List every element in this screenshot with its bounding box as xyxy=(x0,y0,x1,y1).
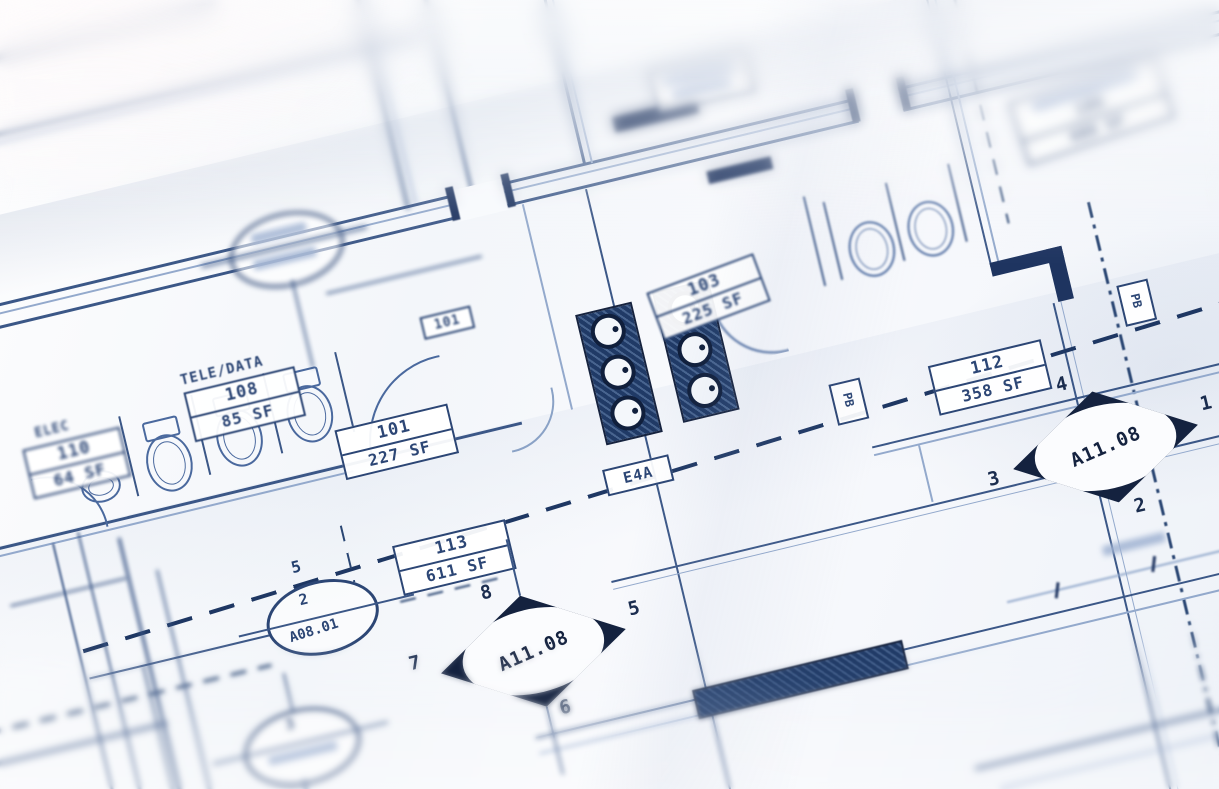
toilet-fixture xyxy=(843,216,901,281)
toilet-bowl xyxy=(851,225,892,273)
wall-poche xyxy=(706,156,773,184)
blueprint-photo: TELE/DATA 108 85 SF ELEC 110 64 SF 101 2… xyxy=(0,0,1219,789)
diamond-corner-number: 8 xyxy=(478,581,494,605)
diamond-corner-number: 7 xyxy=(407,651,423,675)
keynote-label: PB xyxy=(1126,285,1146,315)
diamond-sheet-number: A11.08 xyxy=(495,626,572,676)
wall-poche-hatched xyxy=(692,640,909,720)
wall-line xyxy=(522,204,573,410)
keynote-label: PB xyxy=(838,384,858,414)
door-number: 101 xyxy=(422,308,473,338)
leader-line xyxy=(291,280,314,368)
door-tag-101: 101 xyxy=(419,305,475,340)
room-tag-106-blurred: 106 608 SF xyxy=(1008,54,1175,165)
dimension-tick xyxy=(1151,556,1155,572)
diamond-callout-face: A11.08 xyxy=(453,593,613,709)
stall-partition xyxy=(823,202,844,280)
wall-line xyxy=(1000,697,1219,789)
room-name-label: ELEC xyxy=(33,418,71,441)
stall-partition xyxy=(334,352,355,432)
wall-line xyxy=(0,3,216,107)
floor-plan-canvas: TELE/DATA 108 85 SF ELEC 110 64 SF 101 2… xyxy=(0,0,1219,789)
toilet-fixture xyxy=(902,196,960,261)
wall-line xyxy=(0,722,167,784)
wall-line xyxy=(975,677,1219,770)
diamond-corner-number: 5 xyxy=(626,596,642,620)
toilet-bowl xyxy=(910,205,951,253)
toilet-bowl xyxy=(149,438,190,488)
stall-partition xyxy=(803,196,826,286)
illegible-text-bar xyxy=(1102,532,1167,557)
leader-line xyxy=(283,673,294,712)
diamond-callout-center: A11.08 xyxy=(428,574,639,729)
diamond-corner-number: 6 xyxy=(557,695,573,719)
diamond-sheet-number: A11.08 xyxy=(1067,422,1144,472)
leader-line xyxy=(326,255,482,294)
